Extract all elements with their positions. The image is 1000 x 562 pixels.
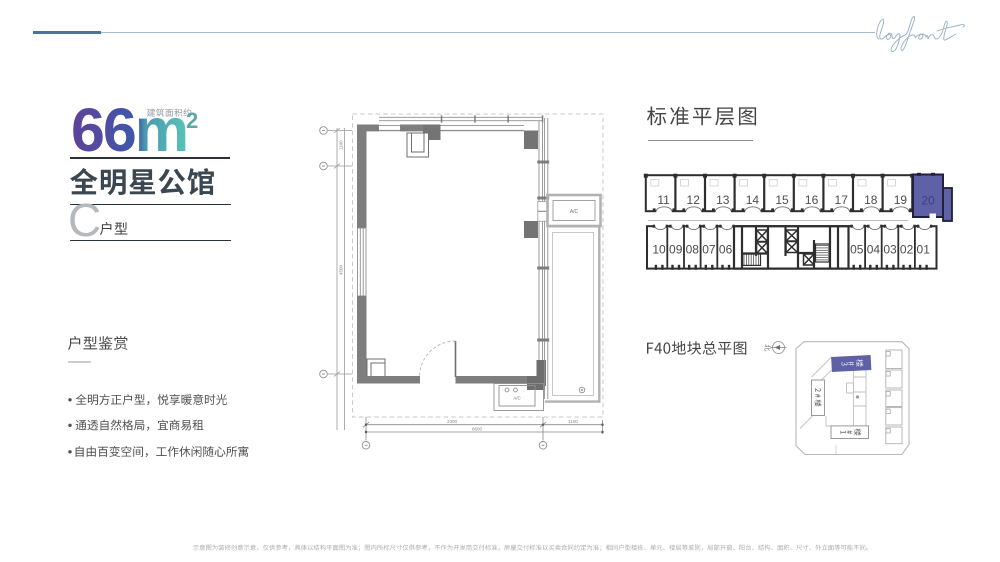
svg-text:08: 08 (686, 243, 700, 257)
svg-text:2: 2 (186, 108, 198, 133)
svg-text:02: 02 (900, 243, 914, 257)
svg-text:14: 14 (746, 193, 760, 207)
svg-text:17: 17 (835, 193, 849, 207)
svg-text:15: 15 (775, 193, 789, 207)
svg-text:A/C: A/C (513, 396, 520, 401)
svg-text:1100: 1100 (339, 140, 344, 150)
svg-text:01: 01 (917, 243, 931, 257)
svg-text:06: 06 (719, 243, 733, 257)
svg-text:4500: 4500 (339, 264, 344, 275)
svg-text:8600: 8600 (472, 427, 483, 432)
svg-text:A/C: A/C (570, 209, 579, 215)
svg-text:04: 04 (867, 243, 881, 257)
svg-text:66m: 66m (71, 96, 187, 157)
svg-text:20: 20 (921, 194, 935, 208)
svg-text:12: 12 (687, 193, 701, 207)
svg-text:18: 18 (864, 193, 878, 207)
svg-text:09: 09 (669, 243, 683, 257)
svg-text:1100: 1100 (568, 419, 578, 424)
svg-text:13: 13 (716, 193, 730, 207)
svg-text:2300: 2300 (447, 419, 458, 424)
svg-text:16: 16 (805, 193, 819, 207)
svg-text:05: 05 (850, 243, 864, 257)
svg-text:19: 19 (894, 193, 908, 207)
svg-text:03: 03 (883, 243, 897, 257)
svg-text:11: 11 (657, 193, 670, 207)
svg-text:10: 10 (652, 243, 666, 257)
svg-text:07: 07 (702, 243, 716, 257)
